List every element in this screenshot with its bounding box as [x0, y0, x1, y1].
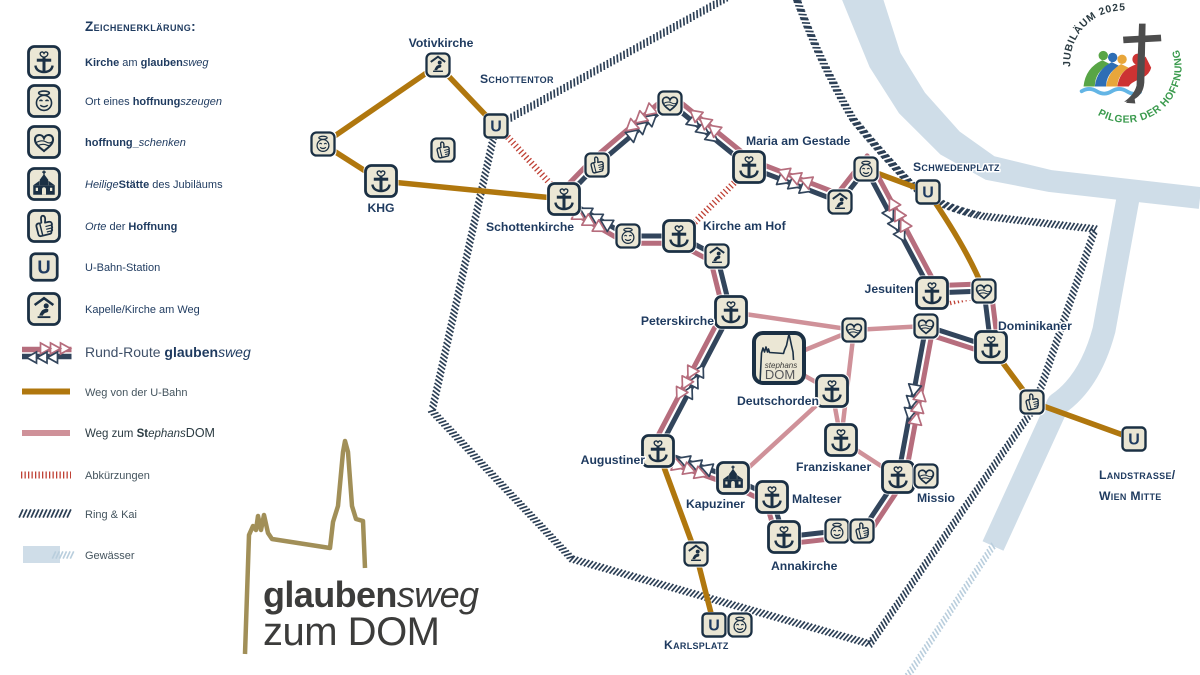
svg-text:DOM: DOM — [765, 367, 795, 382]
svg-text:U-Bahn-Station: U-Bahn-Station — [85, 262, 160, 274]
svg-text:zum DOM: zum DOM — [263, 610, 440, 654]
svg-text:Wien Mitte: Wien Mitte — [1099, 489, 1162, 503]
svg-text:Ort eines hoffnungszeugen: Ort eines hoffnungszeugen — [85, 96, 222, 108]
svg-text:glaubensweg: glaubensweg — [263, 574, 479, 615]
svg-text:Ring & Kai: Ring & Kai — [85, 509, 137, 521]
svg-text:Kirche am Hof: Kirche am Hof — [703, 219, 787, 233]
svg-text:Karlsplatz: Karlsplatz — [664, 638, 729, 652]
svg-text:Abkürzungen: Abkürzungen — [85, 470, 150, 482]
svg-text:Schwedenplatz: Schwedenplatz — [913, 160, 1000, 174]
svg-text:Kapuziner: Kapuziner — [686, 497, 745, 511]
svg-text:Zeichenerklärung:: Zeichenerklärung: — [85, 19, 196, 34]
svg-text:Dominikaner: Dominikaner — [998, 319, 1072, 333]
svg-text:Kapelle/Kirche am Weg: Kapelle/Kirche am Weg — [85, 304, 200, 316]
svg-text:Deutschorden: Deutschorden — [737, 394, 819, 408]
svg-text:hoffnung_schenken: hoffnung_schenken — [85, 137, 186, 149]
svg-text:Malteser: Malteser — [792, 492, 842, 506]
svg-text:Landstrasse/: Landstrasse/ — [1099, 468, 1176, 482]
svg-text:Annakirche: Annakirche — [771, 559, 838, 573]
svg-text:Jesuiten: Jesuiten — [865, 282, 914, 296]
svg-text:Franziskaner: Franziskaner — [796, 460, 871, 474]
svg-text:Weg zum StephansDOM: Weg zum StephansDOM — [85, 426, 215, 440]
svg-text:Augustiner: Augustiner — [581, 453, 646, 467]
svg-text:Votivkirche: Votivkirche — [409, 36, 474, 50]
svg-text:Schottenkirche: Schottenkirche — [486, 220, 574, 234]
svg-text:Gewässer: Gewässer — [85, 550, 135, 562]
svg-text:Maria am Gestade: Maria am Gestade — [746, 134, 851, 148]
svg-text:HeiligeStätte des Jubiläums: HeiligeStätte des Jubiläums — [85, 179, 223, 191]
svg-text:Peterskirche: Peterskirche — [641, 314, 714, 328]
svg-text:Weg von der U-Bahn: Weg von der U-Bahn — [85, 387, 188, 399]
svg-text:KHG: KHG — [367, 201, 394, 215]
svg-text:Missio: Missio — [917, 491, 955, 505]
svg-text:Orte der Hoffnung: Orte der Hoffnung — [85, 221, 177, 233]
svg-text:Kirche am glaubensweg: Kirche am glaubensweg — [85, 57, 209, 69]
svg-text:Rund-Route glaubensweg: Rund-Route glaubensweg — [85, 344, 251, 360]
svg-text:Schottentor: Schottentor — [480, 72, 554, 86]
